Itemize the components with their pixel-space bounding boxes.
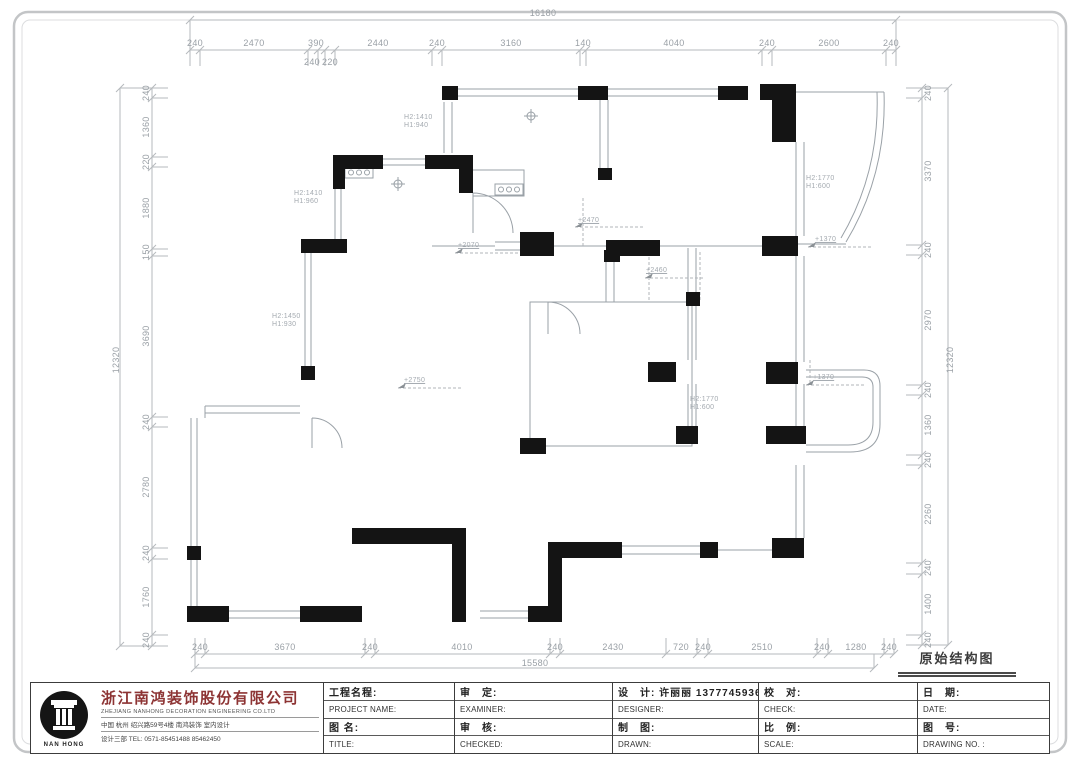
logo-caption: NAN HONG bbox=[44, 742, 85, 748]
company-name-en: ZHEJIANG NANHONG DECORATION ENGINEERING … bbox=[101, 709, 319, 715]
field-examiner-en: EXAMINER: bbox=[455, 700, 612, 718]
field-drawing-no-en: DRAWING NO. : bbox=[918, 735, 1049, 753]
field-date-en: DATE: bbox=[918, 700, 1049, 718]
field-title-cn: 图 名: bbox=[324, 718, 454, 736]
window-lines bbox=[191, 89, 804, 618]
company-dept-tel: 设计三部 TEL: 0571-85451488 85462450 bbox=[101, 731, 319, 745]
titleblock-col-check: 校 对: CHECK: 比 例: SCALE: bbox=[758, 683, 917, 753]
structure-lines bbox=[205, 92, 884, 550]
company-logo: NAN HONG bbox=[35, 689, 93, 748]
field-date-cn: 日 期: bbox=[918, 683, 1049, 700]
field-scale-en: SCALE: bbox=[759, 735, 917, 753]
company-name-cn: 浙江南鸿装饰股份有限公司 bbox=[101, 691, 319, 708]
field-title-en: TITLE: bbox=[324, 735, 454, 753]
field-checked-cn: 审 核: bbox=[455, 718, 612, 736]
field-designer-en: DESIGNER: bbox=[613, 700, 758, 718]
field-drawn-en: DRAWN: bbox=[613, 735, 758, 753]
dimension-lines bbox=[116, 16, 952, 672]
field-checked-en: CHECKED: bbox=[455, 735, 612, 753]
field-check-en: CHECK: bbox=[759, 700, 917, 718]
titleblock-col-project: 工程名程: PROJECT NAME: 图 名: TITLE: bbox=[323, 683, 454, 753]
field-examiner-cn: 审 定: bbox=[455, 683, 612, 700]
stove-icon bbox=[345, 167, 523, 195]
titleblock-col-designer: 设 计: 许丽丽 13777459364 DESIGNER: 制 图: DRAW… bbox=[612, 683, 758, 753]
drawing-sheet: 1618024024703902440240316014040402402600… bbox=[0, 0, 1080, 764]
field-scale-cn: 比 例: bbox=[759, 718, 917, 736]
field-project-name-en: PROJECT NAME: bbox=[324, 700, 454, 718]
page-frame-inner bbox=[22, 20, 1058, 744]
title-block: NAN HONG 浙江南鸿装饰股份有限公司 ZHEJIANG NANHONG D… bbox=[30, 682, 1050, 754]
field-check-cn: 校 对: bbox=[759, 683, 917, 700]
column-logo-icon bbox=[38, 689, 90, 741]
field-drawing-no-cn: 图 号: bbox=[918, 718, 1049, 736]
page-frame-outer bbox=[14, 12, 1066, 752]
titleblock-col-examiner: 审 定: EXAMINER: 审 核: CHECKED: bbox=[454, 683, 612, 753]
titleblock-col-date: 日 期: DATE: 图 号: DRAWING NO. : bbox=[917, 683, 1049, 753]
field-designer-cn: 设 计: 许丽丽 13777459364 bbox=[613, 683, 758, 700]
drawing-title: 原始结构图 bbox=[898, 648, 1016, 677]
walls bbox=[187, 84, 806, 622]
field-drawn-cn: 制 图: bbox=[613, 718, 758, 736]
field-project-name-cn: 工程名程: bbox=[324, 683, 454, 700]
leader-lines bbox=[398, 198, 872, 388]
company-address: 中国 杭州 绍兴路59号4楼 南鸿装饰 室内设计 bbox=[101, 717, 319, 731]
company-block: NAN HONG 浙江南鸿装饰股份有限公司 ZHEJIANG NANHONG D… bbox=[31, 683, 323, 753]
